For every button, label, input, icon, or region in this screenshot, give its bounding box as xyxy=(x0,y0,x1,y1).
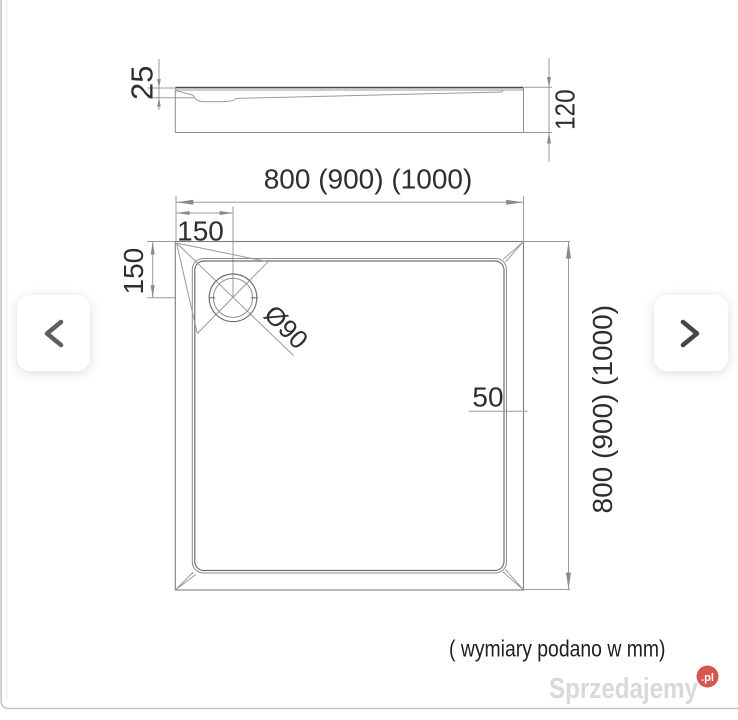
svg-text:800 (900) (1000): 800 (900) (1000) xyxy=(264,164,473,195)
svg-text:120: 120 xyxy=(549,89,581,130)
svg-text:50: 50 xyxy=(472,382,503,413)
svg-text:.pl: .pl xyxy=(701,672,714,684)
svg-text:25: 25 xyxy=(125,66,160,100)
svg-text:( wymiary podano w mm): ( wymiary podano w mm) xyxy=(449,636,665,662)
svg-text:Sprzedajemy: Sprzedajemy xyxy=(549,672,698,705)
svg-text:800 (900) (1000): 800 (900) (1000) xyxy=(587,305,618,514)
svg-text:150: 150 xyxy=(118,248,149,295)
